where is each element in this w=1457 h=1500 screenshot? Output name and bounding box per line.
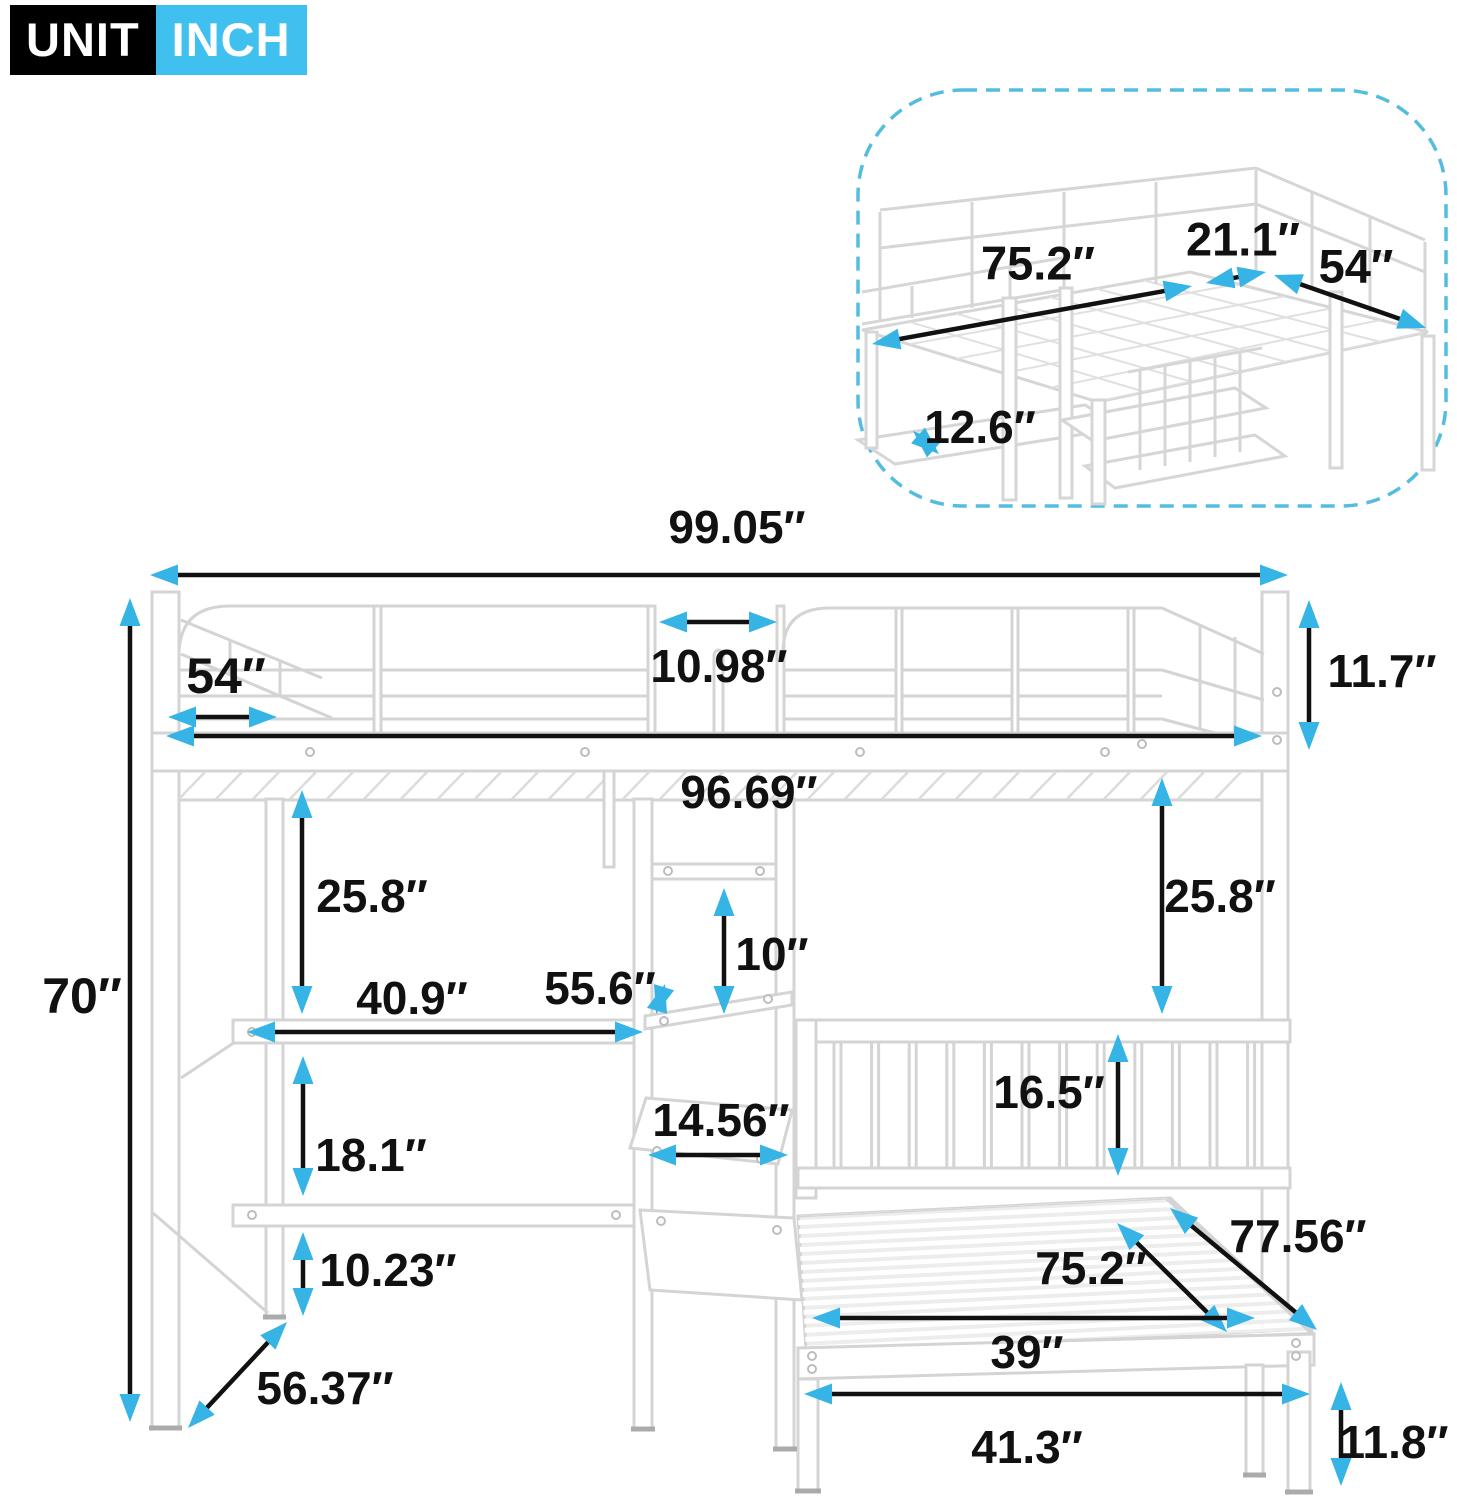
- svg-text:75.2″: 75.2″: [981, 237, 1095, 290]
- svg-text:11.7″: 11.7″: [1327, 645, 1436, 697]
- svg-text:25.8″: 25.8″: [316, 870, 428, 922]
- svg-text:55.6″: 55.6″: [544, 962, 656, 1014]
- svg-text:96.69″: 96.69″: [680, 766, 817, 818]
- loft-bed-wireframe: [149, 592, 1330, 1492]
- page: UNIT INCH: [0, 0, 1457, 1500]
- dimension-diagram: 99.05″54″10.98″11.7″96.69″70″25.8″25.8″1…: [0, 0, 1457, 1500]
- svg-text:54″: 54″: [1319, 240, 1394, 293]
- dim-floor-diagonal: 56.37″: [188, 1322, 394, 1428]
- dim-shelf-width: 14.56″: [648, 1094, 790, 1166]
- svg-text:75.2″: 75.2″: [1035, 1242, 1147, 1294]
- svg-text:14.56″: 14.56″: [652, 1094, 789, 1146]
- dim-leg-height: 11.8″: [1331, 1382, 1449, 1486]
- svg-text:56.37″: 56.37″: [256, 1362, 393, 1414]
- svg-text:25.8″: 25.8″: [1164, 870, 1276, 922]
- dim-top-left-width: 54″: [168, 648, 277, 728]
- dim-clearance-right: 25.8″: [1152, 778, 1276, 1014]
- svg-text:10.23″: 10.23″: [319, 1244, 456, 1296]
- dim-guardrail-height: 11.7″: [1299, 600, 1437, 750]
- dim-overall-height: 70″: [42, 598, 140, 1422]
- svg-text:77.56″: 77.56″: [1229, 1210, 1366, 1262]
- unit-badge: UNIT INCH: [10, 5, 307, 75]
- left-back-leg: [266, 799, 283, 1317]
- dim-base-width: 41.3″: [804, 1384, 1310, 1474]
- svg-text:54″: 54″: [186, 648, 266, 704]
- svg-text:40.9″: 40.9″: [356, 972, 468, 1024]
- dim-shelf-height: 55.6″: [544, 962, 674, 1014]
- svg-text:21.1″: 21.1″: [1186, 213, 1300, 266]
- svg-text:99.05″: 99.05″: [668, 501, 805, 553]
- svg-text:39″: 39″: [990, 1326, 1063, 1378]
- dim-lower-gap: 10.23″: [293, 1232, 457, 1316]
- svg-text:10″: 10″: [735, 928, 808, 980]
- svg-text:16.5″: 16.5″: [993, 1066, 1105, 1118]
- svg-text:70″: 70″: [42, 968, 122, 1024]
- bed-leg-right: [1288, 1352, 1310, 1492]
- headboard-bottom-rail: [798, 1168, 1290, 1188]
- svg-text:41.3″: 41.3″: [971, 1421, 1083, 1473]
- lower-rail: [233, 1205, 640, 1226]
- dim-desk-to-shelf: 18.1″: [293, 1056, 427, 1196]
- svg-text:18.1″: 18.1″: [315, 1129, 427, 1181]
- bed-leg-inner: [1246, 1365, 1263, 1475]
- dim-rail-gap: 10.98″: [650, 612, 787, 693]
- svg-text:12.6″: 12.6″: [924, 401, 1036, 453]
- svg-text:11.8″: 11.8″: [1339, 1416, 1448, 1468]
- dim-inset-shelf-depth: 12.6″: [911, 401, 1036, 457]
- unit-badge-label: UNIT: [10, 5, 156, 75]
- unit-badge-value: INCH: [156, 5, 307, 75]
- dim-overall-width: 99.05″: [150, 501, 1288, 586]
- headboard-top-rail: [798, 1020, 1290, 1042]
- svg-text:10.98″: 10.98″: [650, 640, 787, 692]
